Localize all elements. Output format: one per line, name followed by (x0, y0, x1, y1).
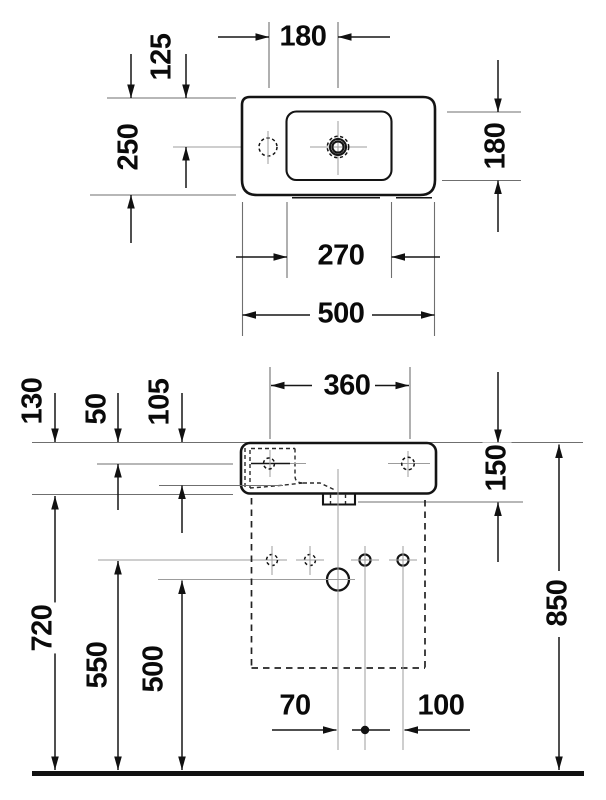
dim-front-bowl-depth: 105 (146, 377, 175, 428)
dimension-reference-dot (361, 726, 369, 734)
dim-plan-depth: 250 (115, 122, 144, 173)
dim-front-rim-height: 850 (544, 578, 573, 629)
dim-plan-bowl-depth: 180 (482, 121, 511, 172)
dim-front-hole-pitch: 100 (416, 692, 467, 721)
dim-front-apron: 150 (483, 443, 512, 494)
dim-front-hole-drop: 50 (83, 391, 112, 426)
dim-front-hanger-height: 550 (84, 640, 113, 691)
dim-front-drain-to-hole: 70 (277, 692, 312, 721)
dim-front-drain-height: 500 (140, 644, 169, 695)
dim-plan-hole-setback: 125 (148, 32, 177, 83)
dim-plan-width: 500 (316, 300, 367, 329)
dim-front-hanger-spacing: 360 (322, 372, 373, 401)
dim-plan-hole-spacing: 180 (278, 23, 329, 52)
front-centerlines (325, 469, 403, 750)
dim-front-underside-height: 720 (29, 603, 58, 654)
dim-front-rim-drop: 130 (19, 376, 48, 427)
front-drain-stub (323, 494, 355, 505)
washbasin-technical-drawing: 180 125 250 180 270 500 360 130 50 105 1… (0, 0, 606, 800)
dim-plan-bowl-width: 270 (316, 242, 367, 271)
